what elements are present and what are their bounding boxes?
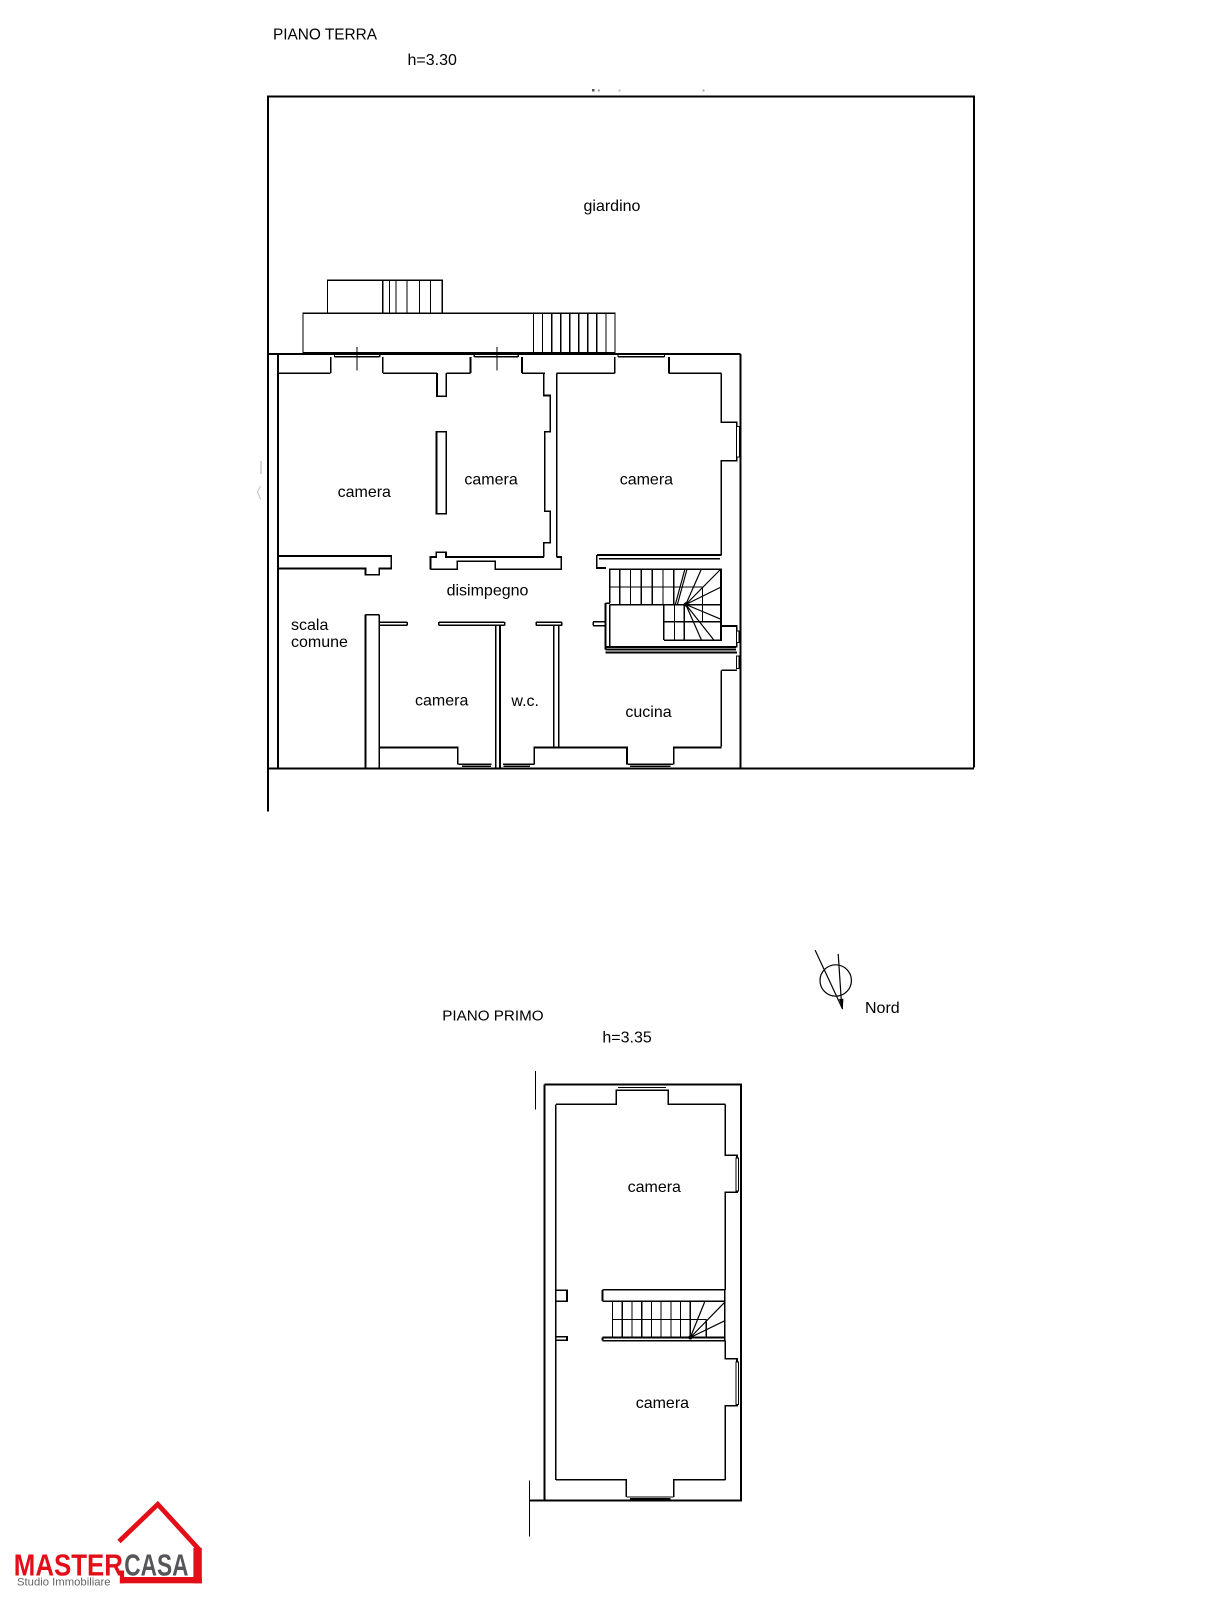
svg-text:camera: camera <box>628 1179 681 1196</box>
svg-text:camera: camera <box>636 1395 689 1412</box>
svg-text:Nord: Nord <box>865 1000 900 1017</box>
svg-text:camera: camera <box>415 693 468 710</box>
svg-text:camera: camera <box>620 472 673 489</box>
svg-text:giardino: giardino <box>584 198 641 215</box>
svg-text:camera: camera <box>338 484 391 501</box>
svg-text:Studio Immobiliare: Studio Immobiliare <box>17 1576 111 1588</box>
svg-text:comune: comune <box>291 634 348 651</box>
svg-text:scala: scala <box>291 617 328 634</box>
svg-text:disimpegno: disimpegno <box>447 583 529 600</box>
svg-text:h=3.30: h=3.30 <box>408 52 457 69</box>
svg-text:PIANO TERRA: PIANO TERRA <box>273 27 378 44</box>
svg-text:camera: camera <box>464 472 517 489</box>
svg-text:CASA: CASA <box>124 1548 188 1582</box>
svg-text:w.c.: w.c. <box>510 693 539 710</box>
svg-text:cucina: cucina <box>625 704 671 721</box>
svg-text:h=3.35: h=3.35 <box>602 1030 651 1047</box>
svg-text:PIANO PRIMO: PIANO PRIMO <box>442 1008 543 1025</box>
